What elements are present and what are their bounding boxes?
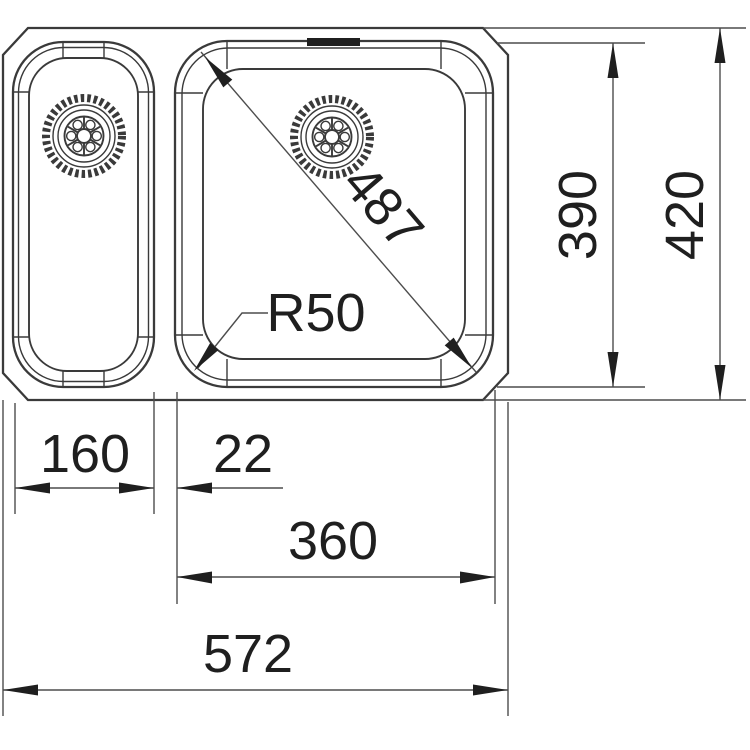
leader-line xyxy=(197,313,268,369)
dimension-right-bowl-width: 360 xyxy=(177,390,495,604)
arrowhead xyxy=(194,343,219,371)
dimension-bowl-front-to-back: 390 xyxy=(497,43,645,387)
dimension-corner-radius: R50 xyxy=(194,283,366,371)
dimension-bowl-gap: 22 xyxy=(177,392,283,604)
arrowhead xyxy=(715,28,726,63)
right-drain-icon xyxy=(294,99,370,175)
arrowhead xyxy=(15,483,50,494)
dim-label-right-bowl-width: 360 xyxy=(288,511,378,571)
arrowhead xyxy=(715,365,726,400)
left-bowl xyxy=(13,42,154,387)
arrowhead xyxy=(177,572,212,584)
left-drain-icon xyxy=(46,98,122,174)
arrowhead xyxy=(608,352,619,387)
arrowhead xyxy=(177,483,212,494)
left-bowl-rim-outer xyxy=(13,42,154,387)
dim-label-bowl-front-to-back: 390 xyxy=(548,170,608,260)
dim-label-overall-front-to-back: 420 xyxy=(655,170,715,260)
dim-label-diagonal: 487 xyxy=(331,153,435,260)
dim-label-bowl-gap: 22 xyxy=(213,424,273,484)
dim-label-overall-width: 572 xyxy=(203,624,293,684)
arrowhead xyxy=(460,572,495,584)
dimension-left-bowl-width: 160 xyxy=(15,392,154,514)
arrowhead xyxy=(608,43,619,78)
arrowhead xyxy=(473,685,508,696)
technical-drawing-canvas: 487 R50 160 22 360 572 xyxy=(0,0,750,750)
arrowhead xyxy=(3,685,38,696)
left-bowl-rim-ticks xyxy=(13,42,154,387)
arrowhead xyxy=(119,483,154,494)
sink-dimension-drawing: 487 R50 160 22 360 572 xyxy=(0,0,750,750)
dim-label-left-bowl-width: 160 xyxy=(40,424,130,484)
dim-label-radius: R50 xyxy=(266,283,365,343)
dimension-overall-front-to-back: 420 xyxy=(483,28,746,400)
sink-outer-edge xyxy=(3,28,508,400)
